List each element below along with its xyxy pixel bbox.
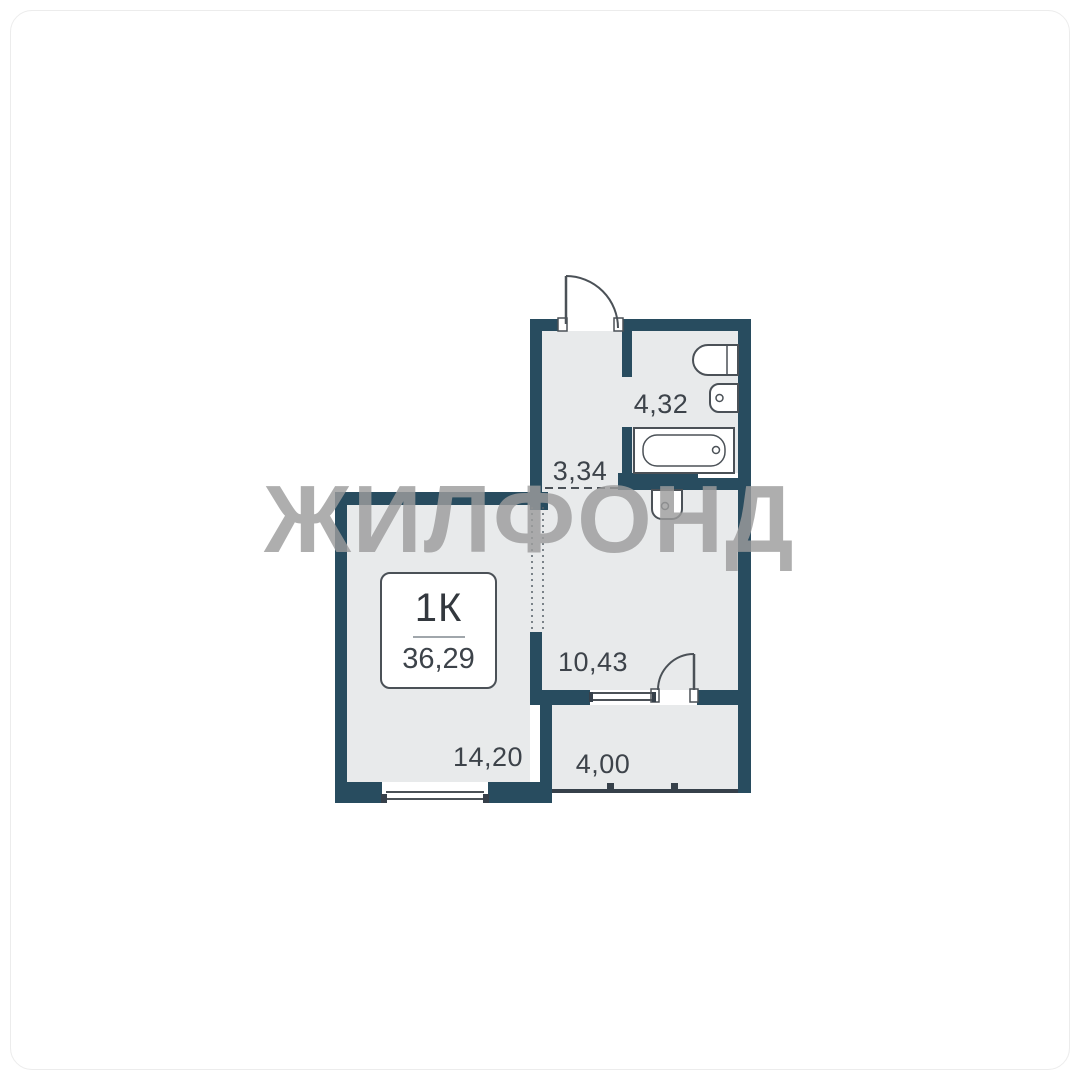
floor-plan: 4,32 3,34 10,43 14,20 4,00 1К 36,29 ЖИЛФ… bbox=[0, 0, 1080, 1080]
bathroom-area-label: 4,32 bbox=[616, 389, 706, 419]
balcony-glazing-line bbox=[552, 789, 738, 793]
balcony-door-frame-left bbox=[651, 689, 659, 702]
wall-top-right bbox=[617, 319, 751, 331]
unit-type-label: 1К bbox=[415, 588, 463, 628]
kitchen-area-label: 10,43 bbox=[548, 647, 638, 677]
wall-kitchen-bottom-left bbox=[542, 690, 590, 705]
watermark-text: ЖИЛФОНД bbox=[264, 472, 795, 568]
wall-living-bottom-left bbox=[335, 782, 382, 803]
wall-balcony-left bbox=[540, 705, 552, 793]
unit-total-area-label: 36,29 bbox=[402, 645, 475, 674]
balcony-area-label: 4,00 bbox=[558, 749, 648, 779]
kitchen-window-cap-right bbox=[652, 692, 656, 702]
entrance-door-arc bbox=[566, 276, 618, 328]
wall-kitchen-divider bbox=[530, 632, 542, 705]
unit-summary-card: 1К 36,29 bbox=[380, 572, 497, 689]
floorplan-canvas: 4,32 3,34 10,43 14,20 4,00 1К 36,29 ЖИЛФ… bbox=[0, 0, 1080, 1080]
unit-card-divider bbox=[413, 636, 465, 638]
living-room-area-label: 14,20 bbox=[443, 742, 533, 772]
wall-kitchen-bottom-right bbox=[697, 690, 738, 705]
wall-bath-divider-upper bbox=[622, 331, 632, 377]
